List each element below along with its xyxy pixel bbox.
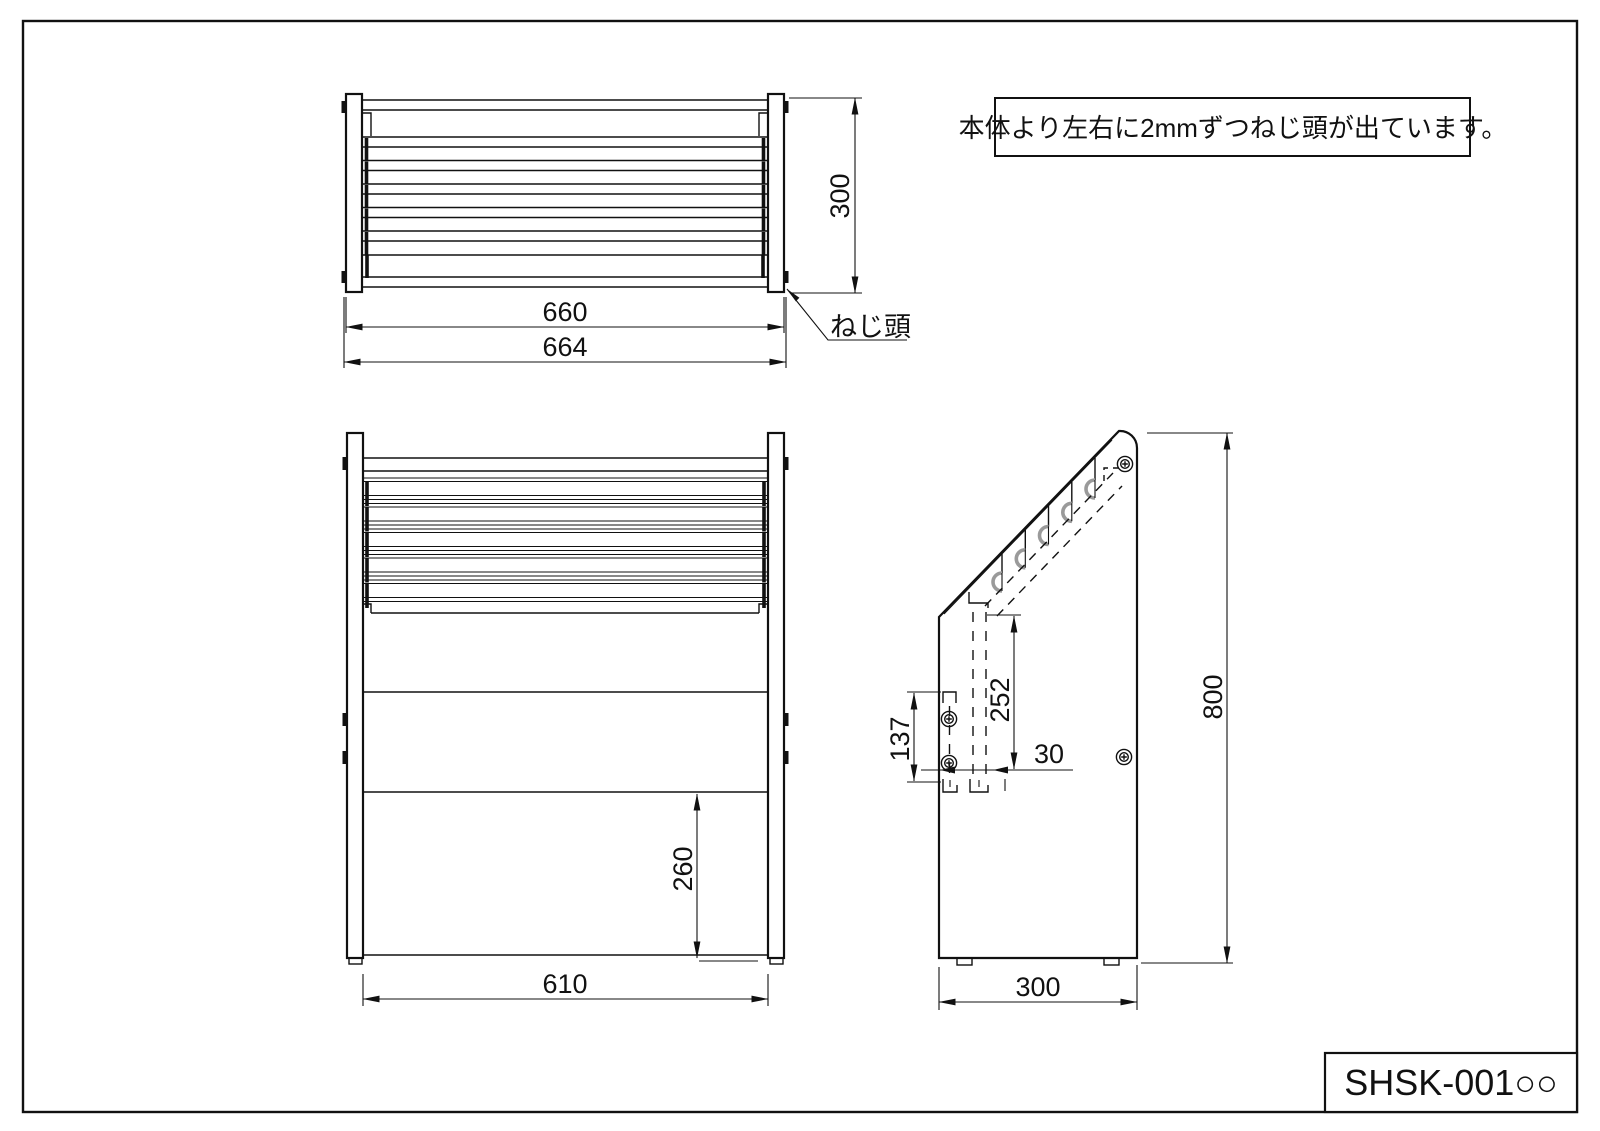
screw-head-bump — [784, 101, 789, 113]
side-view-body — [939, 431, 1137, 965]
dim-side-slot-length: 252 — [985, 677, 1015, 722]
front-view: 260 610 — [343, 433, 789, 1006]
top-view-body — [342, 94, 789, 292]
side-view-dimensions: 800 300 252 137 30 — [885, 433, 1233, 1010]
top-view-slats — [362, 137, 768, 278]
dim-top-width-overall: 664 — [542, 332, 587, 362]
screw-head-bump — [784, 457, 789, 470]
screw-icon — [1117, 456, 1132, 471]
screw-head-bump — [784, 713, 789, 726]
front-view-dimensions: 260 610 — [363, 794, 768, 1006]
slot-column-front — [943, 692, 957, 792]
title-block: SHSK-001○○ — [1325, 1053, 1577, 1112]
screw-head-label: ねじ頭 — [830, 312, 911, 342]
dim-front-lower-height: 260 — [668, 846, 698, 891]
top-view-dimensions: 300 660 664 ねじ頭 — [344, 98, 911, 368]
screw-head-bump — [342, 271, 347, 283]
front-view-slats — [363, 478, 768, 613]
screw-head-bump — [343, 457, 348, 470]
front-view-body — [343, 433, 789, 964]
screw-head-bump — [343, 751, 348, 764]
dim-side-screw-pitch: 137 — [885, 716, 915, 761]
screw-head-bump — [784, 751, 789, 764]
sheet-border — [23, 21, 1577, 1112]
note-text: 本体より左右に2mmずつねじ頭が出ています。 — [959, 113, 1508, 143]
dim-side-slot-offset: 30 — [1034, 739, 1064, 769]
dim-front-width: 610 — [542, 969, 587, 999]
dim-side-depth: 300 — [1015, 972, 1060, 1002]
top-view: 300 660 664 ねじ頭 — [342, 94, 912, 368]
screw-head-bump — [784, 271, 789, 283]
dim-side-height: 800 — [1198, 674, 1228, 719]
dim-top-depth: 300 — [825, 173, 855, 218]
drawing-sheet: 本体より左右に2mmずつねじ頭が出ています。 SHSK-001○○ — [0, 0, 1600, 1131]
cad-drawing: 本体より左右に2mmずつねじ頭が出ています。 SHSK-001○○ — [0, 0, 1600, 1131]
part-number: SHSK-001○○ — [1344, 1062, 1558, 1103]
dim-top-width-body: 660 — [542, 297, 587, 327]
screw-head-bump — [343, 713, 348, 726]
slope-hooks — [993, 458, 1095, 591]
note-box: 本体より左右に2mmずつねじ頭が出ています。 — [959, 98, 1508, 156]
screw-head-bump — [342, 101, 347, 113]
side-view: 800 300 252 137 30 — [885, 431, 1233, 1010]
screw-icon — [1116, 749, 1131, 764]
